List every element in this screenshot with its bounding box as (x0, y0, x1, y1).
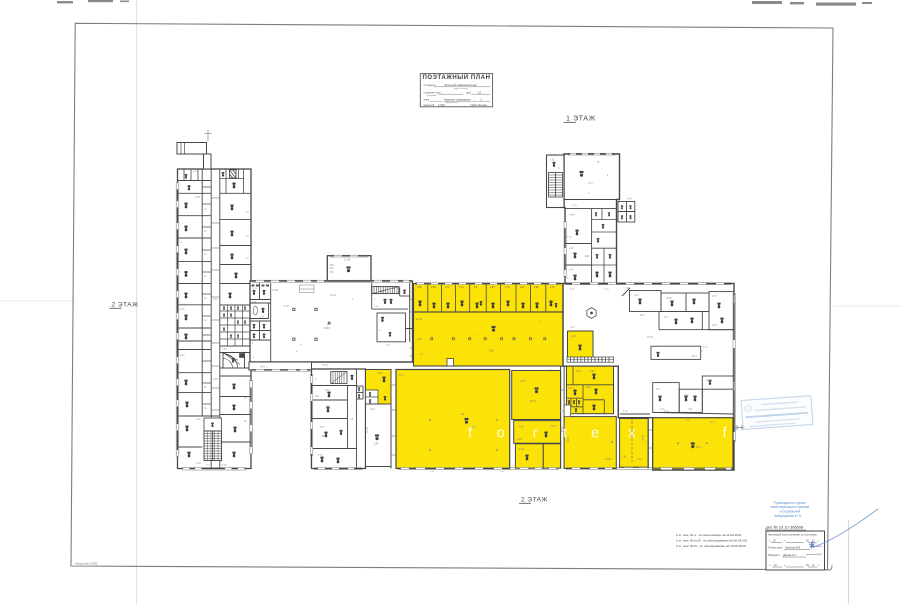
svg-text:4.72: 4.72 (570, 289, 575, 291)
svg-text:4.40: 4.40 (180, 355, 185, 357)
svg-text:ПОЭТАЖНЫЙ ПЛАН: ПОЭТАЖНЫЙ ПЛАН (422, 73, 490, 81)
svg-text:1.05: 1.05 (576, 371, 581, 373)
svg-text:o: o (497, 425, 505, 442)
svg-text:Заборщикова И. К.: Заборщикова И. К. (774, 514, 802, 518)
svg-text:Проверил:: Проверил: (768, 554, 781, 557)
svg-text:СЛ: СЛ (350, 419, 354, 421)
svg-text:2 эт. пом. № 1 - по экспликаци: 2 эт. пом. № 1 - по экспликации на 11.04… (676, 533, 742, 537)
svg-text:1.88: 1.88 (195, 197, 200, 199)
svg-text:3.06: 3.06 (370, 409, 375, 411)
svg-text:Большой Саввинский пер.: Большой Саввинский пер. (445, 83, 478, 87)
svg-text:1.86: 1.86 (490, 287, 495, 289)
svg-text:24.51: 24.51 (330, 294, 337, 297)
svg-text:ЗА: ЗА (461, 413, 464, 416)
svg-text:и сооружений: и сооружений (780, 509, 801, 513)
svg-text:8.75: 8.75 (320, 427, 325, 429)
svg-text:2.21: 2.21 (520, 287, 525, 289)
svg-text:10.96: 10.96 (367, 427, 369, 433)
svg-text:7.10: 7.10 (637, 459, 642, 461)
svg-text:(вид объекта): (вид объекта) (446, 102, 458, 104)
svg-text:30.3: 30.3 (692, 355, 697, 358)
svg-text:2 ЭТАЖ: 2 ЭТАЖ (521, 497, 548, 504)
svg-text:4.04: 4.04 (519, 426, 524, 429)
svg-text:1.70: 1.70 (505, 287, 510, 289)
svg-text:2.62: 2.62 (688, 409, 693, 411)
svg-text:1.13: 1.13 (685, 420, 690, 422)
svg-text:Масштаб 1:500: Масштаб 1:500 (76, 562, 98, 566)
svg-text:2х2: 2х2 (585, 255, 590, 258)
svg-text:4.45: 4.45 (180, 309, 185, 311)
svg-text:масштаб: масштаб (424, 103, 435, 107)
svg-text:4.90: 4.90 (712, 325, 717, 327)
svg-text:4.38: 4.38 (623, 411, 628, 413)
svg-text:Техник смен.: Техник смен. (768, 547, 783, 550)
svg-text:4.72: 4.72 (604, 289, 609, 291)
svg-text:П: П (747, 406, 750, 411)
svg-text:1.68: 1.68 (534, 287, 539, 289)
svg-text:170: 170 (374, 443, 379, 446)
svg-text:4.07: 4.07 (664, 317, 669, 319)
svg-text:(владение): (владение) (427, 95, 437, 97)
svg-text:5.05: 5.05 (548, 371, 553, 373)
svg-text:1.12: 1.12 (634, 295, 639, 297)
svg-text:124: 124 (489, 349, 494, 353)
svg-text:2.61: 2.61 (550, 160, 555, 162)
svg-text:3.40: 3.40 (196, 463, 201, 465)
svg-text:25.80: 25.80 (647, 337, 653, 339)
svg-text:17.85: 17.85 (272, 289, 279, 292)
svg-text:5.16: 5.16 (519, 448, 524, 451)
svg-text:4.40: 4.40 (196, 419, 201, 421)
svg-text:5.47: 5.47 (703, 347, 708, 349)
svg-text:1.97: 1.97 (568, 388, 573, 390)
svg-text:Нежилое помещение: Нежилое помещение (444, 97, 471, 101)
svg-text:дом: дом (466, 92, 471, 95)
svg-text:1 ЭТАЖ: 1 ЭТАЖ (566, 114, 596, 123)
svg-text:2.95: 2.95 (586, 387, 591, 389)
svg-text:5.48: 5.48 (222, 465, 227, 467)
svg-text:Прежняя В.И.: Прежняя В.И. (785, 547, 801, 550)
svg-text:2.67: 2.67 (222, 349, 227, 351)
svg-text:17.85: 17.85 (283, 306, 289, 308)
svg-text:4.97: 4.97 (569, 248, 574, 250)
svg-text:1.76: 1.76 (550, 287, 555, 289)
svg-text:(адрес объекта): (адрес объекта) (454, 88, 468, 90)
svg-text:4.16: 4.16 (664, 411, 669, 413)
svg-text:+4.84: +4.84 (569, 215, 576, 217)
svg-text:4.43: 4.43 (571, 336, 576, 338)
svg-text:2.40: 2.40 (213, 379, 218, 381)
svg-text:2.40: 2.40 (213, 299, 218, 301)
svg-text:393.9: 393.9 (324, 327, 331, 330)
svg-text:10.66: 10.66 (666, 298, 672, 300)
svg-text:5.06: 5.06 (590, 371, 595, 373)
svg-text:4.92: 4.92 (569, 270, 574, 272)
svg-text:1.84: 1.84 (622, 457, 627, 459)
svg-text:e: e (591, 425, 599, 442)
svg-text:13.07: 13.07 (520, 380, 527, 383)
svg-text:6.97: 6.97 (399, 375, 404, 377)
svg-text:6.97: 6.97 (378, 373, 383, 375)
svg-text:1.71: 1.71 (445, 287, 450, 289)
svg-text:СЗАО Москвы: СЗАО Москвы (470, 103, 487, 107)
svg-text:10.98: 10.98 (605, 458, 612, 461)
svg-text:2.59: 2.59 (417, 287, 422, 289)
svg-text:48.8: 48.8 (567, 437, 570, 442)
svg-text:17.2: 17.2 (710, 422, 715, 424)
svg-text:5.47: 5.47 (656, 389, 661, 391)
svg-text:4.43: 4.43 (570, 327, 575, 329)
svg-text:2.75: 2.75 (318, 455, 323, 457)
svg-text:85.3: 85.3 (696, 445, 702, 449)
svg-text:5.52: 5.52 (325, 390, 330, 392)
svg-text:2 эт. пом. № III - по обследов: 2 эт. пом. № III - по обследованию на 16… (676, 544, 746, 548)
svg-text:x: x (628, 425, 636, 442)
svg-text:2 эт. пом. № Iа,III - по обсле: 2 эт. пом. № Iа,III - по обследованию на… (676, 539, 748, 543)
svg-text:8.40: 8.40 (260, 367, 265, 369)
svg-text:Настоящий план составлен по со: Настоящий план составлен по состоянию (768, 534, 817, 537)
svg-text:41.05: 41.05 (416, 319, 422, 321)
svg-text:35.90: 35.90 (322, 365, 328, 367)
svg-text:7.24: 7.24 (572, 206, 577, 208)
svg-text:r: r (533, 425, 538, 442)
svg-text:4.40: 4.40 (684, 395, 689, 397)
svg-text:13.37: 13.37 (550, 425, 557, 428)
svg-text:4.75: 4.75 (712, 296, 717, 298)
svg-text:2.18: 2.18 (517, 438, 522, 441)
svg-text:2 ЭТАЖ: 2 ЭТАЖ (112, 302, 139, 309)
svg-text:1.74: 1.74 (459, 287, 464, 289)
svg-text:25.07: 25.07 (530, 400, 537, 403)
svg-text:10.5: 10.5 (322, 435, 327, 438)
svg-text:4.97: 4.97 (193, 172, 198, 174)
svg-text:15.4Б: 15.4Б (344, 260, 350, 262)
svg-text:дел.№ 23 10 306608: дел.№ 23 10 306608 (766, 525, 805, 530)
svg-text:2.64: 2.64 (627, 199, 632, 201)
svg-text:Дикова К.А.: Дикова К.А. (783, 554, 797, 557)
svg-text:этаж: этаж (424, 99, 430, 102)
svg-text:10.66: 10.66 (706, 380, 712, 382)
svg-text:12: 12 (478, 90, 482, 94)
svg-text:9.74: 9.74 (588, 183, 593, 185)
svg-text:7.73: 7.73 (567, 237, 572, 239)
svg-text:16.95: 16.95 (643, 435, 645, 441)
svg-text:2.59: 2.59 (431, 287, 436, 289)
svg-text:3.10: 3.10 (417, 339, 422, 341)
svg-text:6.67: 6.67 (640, 315, 645, 317)
